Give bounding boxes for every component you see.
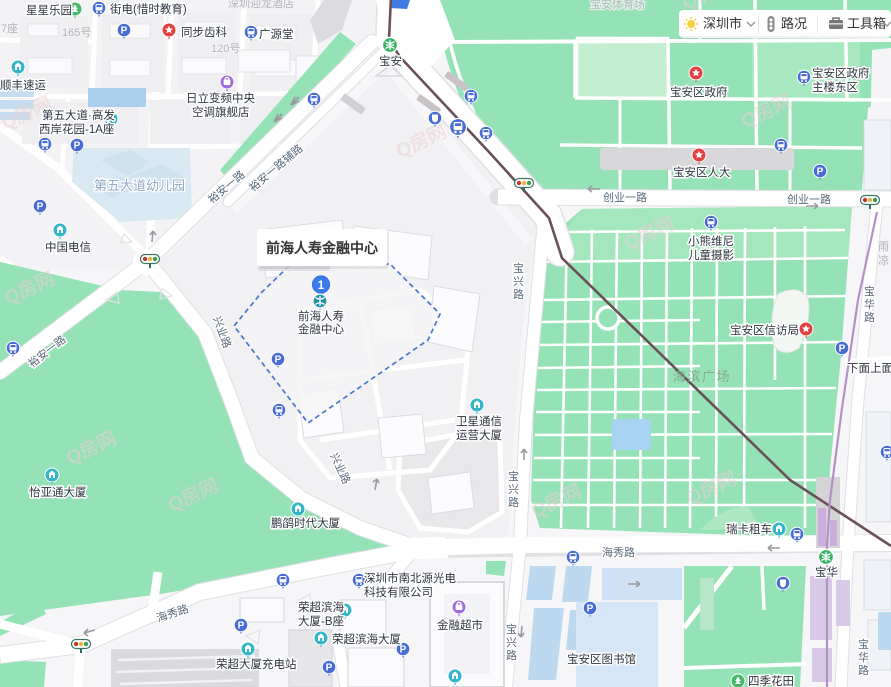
svg-text:瑞卡租车: 瑞卡租车 [726,522,772,536]
svg-text:创业一路: 创业一路 [787,193,831,206]
svg-text:宝安区图书馆: 宝安区图书馆 [567,652,636,666]
svg-text:路况: 路况 [781,16,807,31]
svg-text:兴: 兴 [506,636,517,649]
svg-text:荣超滨海: 荣超滨海 [298,600,344,614]
svg-text:宝: 宝 [858,637,869,651]
svg-text:创业一路: 创业一路 [603,191,647,204]
svg-text:主楼东区: 主楼东区 [812,80,858,94]
svg-text:165号: 165号 [62,26,91,39]
svg-text:1: 1 [318,280,325,292]
svg-text:日立变频中央: 日立变频中央 [186,91,255,105]
svg-text:深圳市南北源光电: 深圳市南北源光电 [364,571,456,585]
svg-text:运营大厦: 运营大厦 [456,428,502,442]
svg-text:前海人寿: 前海人寿 [298,309,344,323]
svg-text:荣超大厦充电站: 荣超大厦充电站 [216,657,297,671]
svg-text:前海人寿金融中心: 前海人寿金融中心 [266,240,378,256]
svg-text:科技有限公司: 科技有限公司 [364,585,433,599]
svg-text:金融超市: 金融超市 [437,618,483,632]
svg-text:四季花田: 四季花田 [748,675,794,687]
svg-text:宝安区政府: 宝安区政府 [812,66,870,80]
svg-text:7座: 7座 [1,21,18,35]
svg-text:深圳迎龙酒店: 深圳迎龙酒店 [228,0,294,10]
svg-text:兴: 兴 [513,275,524,288]
svg-text:鹏鹐时代大厦: 鹏鹐时代大厦 [271,516,340,530]
svg-text:广源堂: 广源堂 [259,27,294,41]
svg-text:第五大道·高发: 第五大道·高发 [42,108,115,122]
svg-text:荣超滨海大厦: 荣超滨海大厦 [332,632,401,646]
svg-text:下面上面: 下面上面 [847,362,891,375]
svg-text:路: 路 [858,664,869,677]
svg-text:街电(惜时教育): 街电(惜时教育) [110,2,187,16]
svg-text:大厦-B座: 大厦-B座 [298,614,344,628]
svg-text:路: 路 [508,496,519,509]
svg-text:海滨广场: 海滨广场 [673,369,731,384]
svg-text:兴: 兴 [508,483,519,496]
svg-text:怡亚通大厦: 怡亚通大厦 [29,485,87,499]
svg-text:雨: 雨 [878,241,889,253]
svg-text:宝安体育场: 宝安体育场 [590,0,645,11]
svg-text:华: 华 [864,297,875,311]
svg-text:120号: 120号 [211,42,240,55]
svg-text:路: 路 [506,649,517,662]
svg-text:同步齿科: 同步齿科 [181,25,227,39]
svg-text:路: 路 [513,288,524,301]
svg-text:路: 路 [864,311,875,324]
svg-text:小熊维尼: 小熊维尼 [688,234,734,248]
svg-text:海秀路: 海秀路 [602,545,635,559]
svg-text:儿童摄影: 儿童摄影 [688,248,734,262]
svg-text:星星乐园: 星星乐园 [26,4,72,17]
svg-text:宝: 宝 [513,261,524,275]
svg-text:华: 华 [858,650,869,664]
svg-text:宝安: 宝安 [379,54,402,68]
svg-text:中国电信: 中国电信 [45,241,91,254]
svg-text:金融中心: 金融中心 [298,322,344,336]
svg-text:卫星通信: 卫星通信 [456,415,502,428]
svg-text:凉: 凉 [878,253,889,267]
svg-text:工具箱: 工具箱 [847,16,886,31]
svg-text:深圳市: 深圳市 [703,16,742,31]
svg-text:宝安区信访局: 宝安区信访局 [730,323,799,337]
svg-text:第五大道幼儿园: 第五大道幼儿园 [94,178,185,193]
svg-text:宝安区人大: 宝安区人大 [673,165,731,179]
svg-text:空调旗舰店: 空调旗舰店 [192,105,250,119]
svg-text:宝: 宝 [508,469,519,483]
svg-text:宝: 宝 [506,622,517,636]
svg-text:顺丰速运: 顺丰速运 [0,79,46,92]
svg-text:宝华: 宝华 [815,565,838,579]
svg-text:宝安区政府: 宝安区政府 [670,85,728,99]
svg-text:西岸花园-1A座: 西岸花园-1A座 [39,122,114,136]
svg-text:宝: 宝 [864,284,875,298]
